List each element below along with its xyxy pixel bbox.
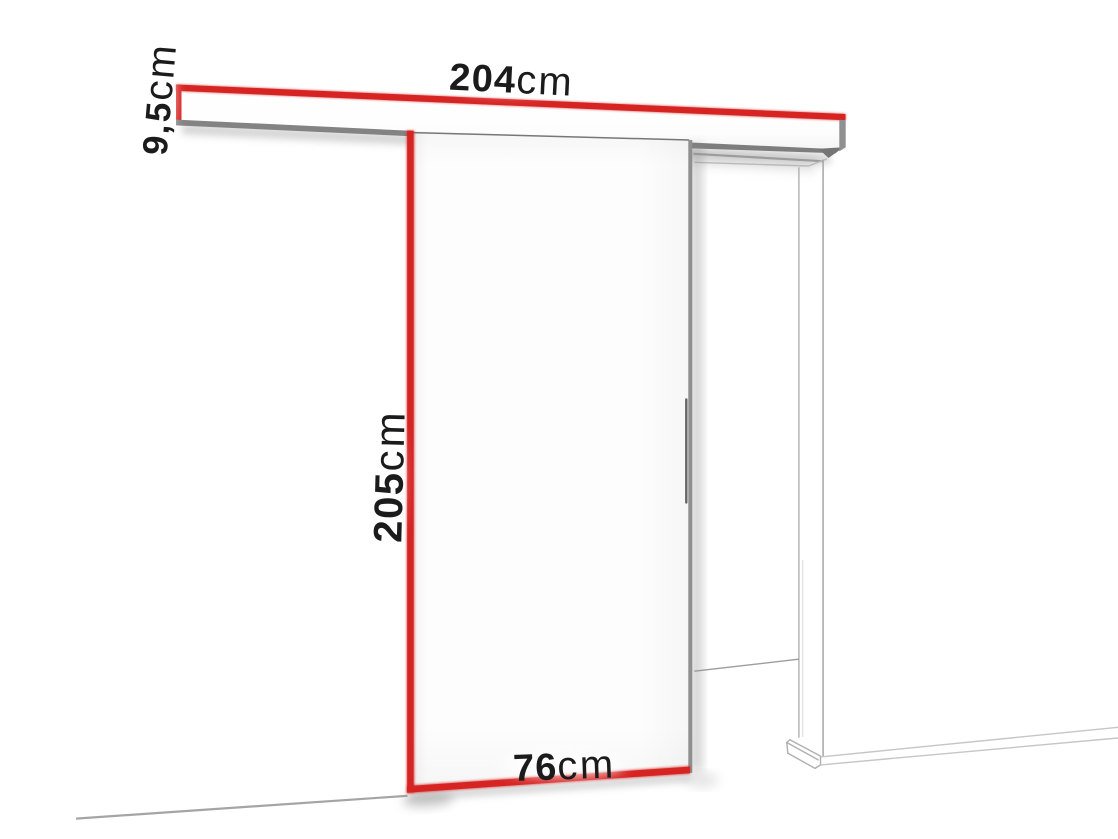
svg-text:76cm: 76cm	[512, 742, 616, 790]
svg-text:204cm: 204cm	[448, 55, 574, 105]
svg-text:205cm: 205cm	[363, 409, 413, 543]
